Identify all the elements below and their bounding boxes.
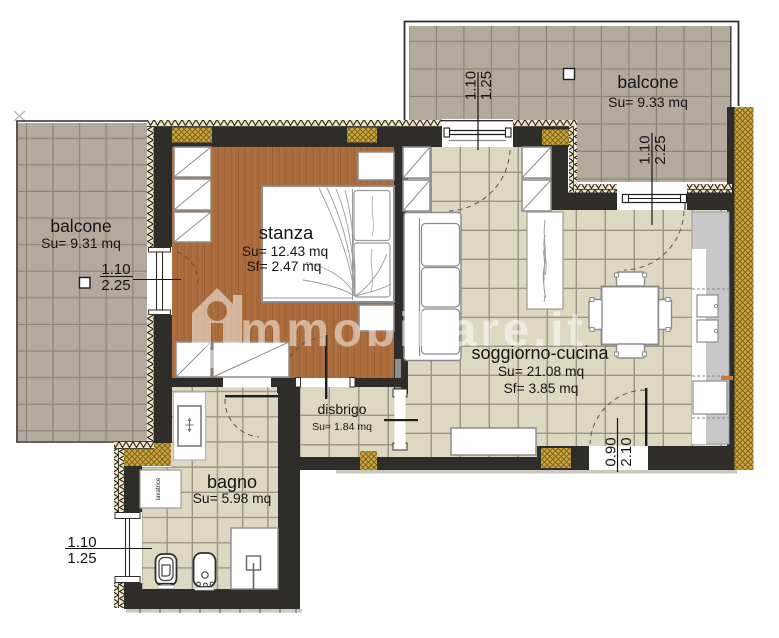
svg-text:Sf= 2.47 mq: Sf= 2.47 mq xyxy=(247,259,322,274)
svg-text:1.10: 1.10 xyxy=(101,261,130,278)
svg-text:Su= 12.43 mq: Su= 12.43 mq xyxy=(242,244,328,259)
svg-text:2.10: 2.10 xyxy=(618,437,635,466)
svg-text:Su= 9.31 mq: Su= 9.31 mq xyxy=(41,235,121,251)
svg-text:1.25: 1.25 xyxy=(67,550,96,567)
svg-text:balcone: balcone xyxy=(617,72,678,92)
svg-text:Su= 1.84 mq: Su= 1.84 mq xyxy=(312,421,372,433)
svg-text:2.25: 2.25 xyxy=(652,135,669,164)
svg-text:2.25: 2.25 xyxy=(101,277,130,294)
svg-text:Su= 21.08 mq: Su= 21.08 mq xyxy=(498,364,584,379)
svg-text:disbrigo: disbrigo xyxy=(317,401,366,417)
svg-text:1.10: 1.10 xyxy=(637,135,654,164)
svg-text:Su= 9.33 mq: Su= 9.33 mq xyxy=(608,94,688,110)
svg-text:1.10: 1.10 xyxy=(463,71,480,100)
svg-text:lavatrice: lavatrice xyxy=(156,477,162,500)
svg-text:Su= 5.98 mq: Su= 5.98 mq xyxy=(193,491,272,506)
svg-text:stanza: stanza xyxy=(259,222,314,243)
svg-text:Sf= 3.85 mq: Sf= 3.85 mq xyxy=(504,381,579,396)
svg-text:1.25: 1.25 xyxy=(478,71,495,100)
svg-text:balcone: balcone xyxy=(50,216,111,236)
svg-text:bagno: bagno xyxy=(207,472,257,492)
svg-text:mmobiliare.it: mmobiliare.it xyxy=(240,304,587,357)
